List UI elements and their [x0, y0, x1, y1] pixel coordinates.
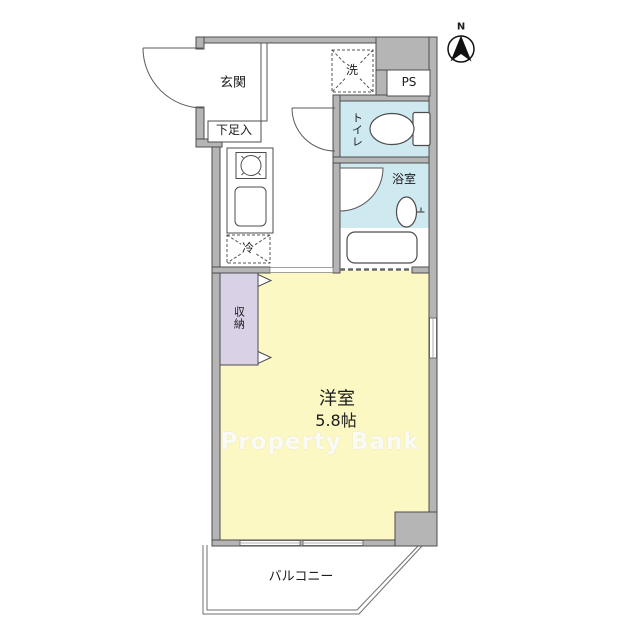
main-room-size-label: 5.8帖 [315, 412, 356, 430]
toilet-bowl [370, 114, 414, 145]
laundry-label: 洗 [345, 64, 359, 78]
compass [448, 36, 474, 63]
wall-hall-vertical [333, 95, 340, 273]
entrance-divider [261, 43, 267, 121]
wall-top [196, 37, 386, 43]
shoe-box-label: 下足入 [216, 124, 252, 138]
bathroom-label: 浴室 [392, 173, 416, 187]
washbasin [397, 197, 417, 227]
kitchen-sink [235, 187, 266, 226]
kitchen-fixtures [227, 148, 273, 233]
floorplan-drawing [0, 0, 640, 640]
wall-topright-block [376, 37, 437, 70]
toilet-tank [413, 113, 430, 146]
refrigerator-label: 冷 [241, 242, 255, 256]
wall-bath-bottom-end [412, 267, 429, 273]
floorplan-canvas: N 玄関 下足入 洗 PS トイレ 浴室 冷 収納 洋室 5.8帖 Proper… [0, 0, 640, 640]
wall-below-kitchen [212, 267, 270, 273]
balcony-label: バルコニー [269, 571, 334, 586]
bathtub [347, 232, 417, 263]
wall-left-lower [212, 147, 220, 546]
main-room-label: 洋室 [319, 390, 355, 411]
closet-label: 収納 [232, 306, 245, 330]
wall-toilet-bath [333, 157, 429, 163]
room-opening [270, 268, 333, 273]
wall-bottomright-block [395, 512, 437, 546]
entrance-label: 玄関 [220, 77, 246, 92]
toilet-fixture [370, 113, 430, 146]
north-label: N [457, 21, 465, 33]
entrance-door-arc [143, 48, 203, 108]
toilet-label: トイレ [350, 112, 363, 148]
watermark: Property Bank [220, 429, 419, 455]
pipe-space-label: PS [402, 76, 417, 90]
wall-left-above-door [196, 37, 204, 49]
toilet-door-arc [292, 108, 335, 151]
